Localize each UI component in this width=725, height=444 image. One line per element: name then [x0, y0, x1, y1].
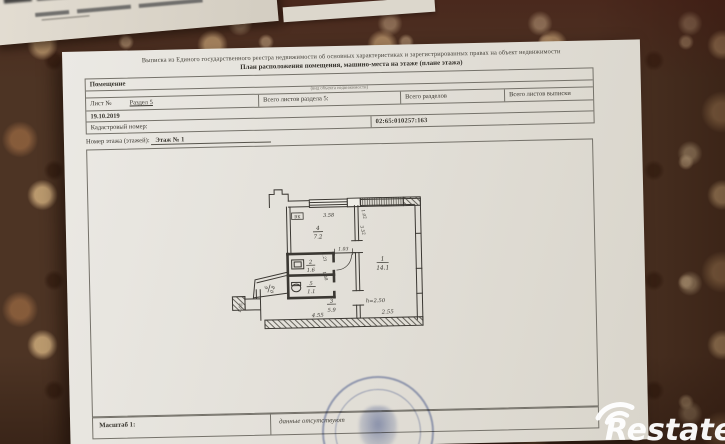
kitchen-left-wall [286, 207, 291, 254]
section-label: Раздел 5 [130, 99, 153, 108]
plan-frame: ВК 3.58 4 7.2 1.02 3.52 1.03 2 1.6 5 1.1… [86, 138, 599, 417]
window-1 [309, 199, 347, 207]
height-mark: h=2.50 [366, 298, 386, 304]
dim-bath-width: 1.21 [321, 252, 328, 262]
room-6-label: 6 0.8 [263, 283, 277, 294]
dim-room-width: 2.55 [381, 309, 395, 315]
dim-partition-upper: 1.02 [359, 209, 366, 220]
illegible-text-line [35, 0, 203, 17]
photo-of-document: Выписка из Единого государственного реес… [0, 0, 725, 444]
cadastral-number: 02:65:010257:163 [370, 111, 593, 127]
wall-pier [347, 198, 360, 207]
room-3-area: 5.9 [328, 308, 337, 314]
room-2-number: 2 [308, 260, 312, 266]
room-1-area: 14.1 [376, 265, 389, 271]
room-1-number: 1 [381, 257, 385, 263]
floor-plan-drawing: ВК 3.58 4 7.2 1.02 3.52 1.03 2 1.6 5 1.1… [229, 173, 444, 338]
dim-balcony-width: 1.05 [237, 302, 244, 312]
floor-number-value: Этаж № 1 [151, 134, 271, 145]
room-2-area: 1.6 [307, 268, 316, 274]
restate-watermark: Restate [590, 399, 725, 444]
dim-wc-width: 1.48 [322, 271, 329, 282]
corner-wall [403, 197, 420, 206]
room-4-number: 4 [315, 226, 320, 232]
vent-label: ВК [294, 214, 301, 219]
window-2 [360, 197, 403, 206]
sink-fixture [292, 260, 304, 269]
room-4-area: 7.2 [314, 234, 323, 240]
scale-label: Масштаб 1: [93, 415, 271, 439]
illegible-text-line [4, 0, 254, 4]
plan-labels: ВК 3.58 4 7.2 1.02 3.52 1.03 2 1.6 5 1.1… [235, 208, 395, 320]
floor-number-label: Номер этажа (этажей): [86, 137, 150, 145]
dim-hall-width: 4.55 [311, 313, 325, 319]
sheet-no-label: Лист № [90, 100, 112, 108]
total-sections-cell: Всего разделов [400, 89, 504, 103]
room-5-area: 1.1 [307, 289, 315, 295]
room-6-area: 0.8 [269, 285, 277, 294]
info-table: Помещение (вид объекта недвижимости) Лис… [85, 67, 595, 134]
floor-number-line: Номер этажа (этажей): Этаж № 1 [86, 134, 271, 146]
restate-logo-text: Restate [605, 413, 725, 444]
total-sheets-cell: Всего листов выписки [504, 87, 593, 101]
bottom-wall [265, 317, 423, 329]
dim-partition-lower: 3.52 [358, 225, 365, 236]
door-arc [336, 255, 351, 270]
chimney-outline [269, 190, 288, 208]
right-wall [420, 198, 423, 325]
dim-kitchen-width: 3.58 [323, 213, 334, 219]
dim-door-width: 1.03 [338, 246, 348, 252]
eagle-emblem-icon [359, 406, 397, 444]
